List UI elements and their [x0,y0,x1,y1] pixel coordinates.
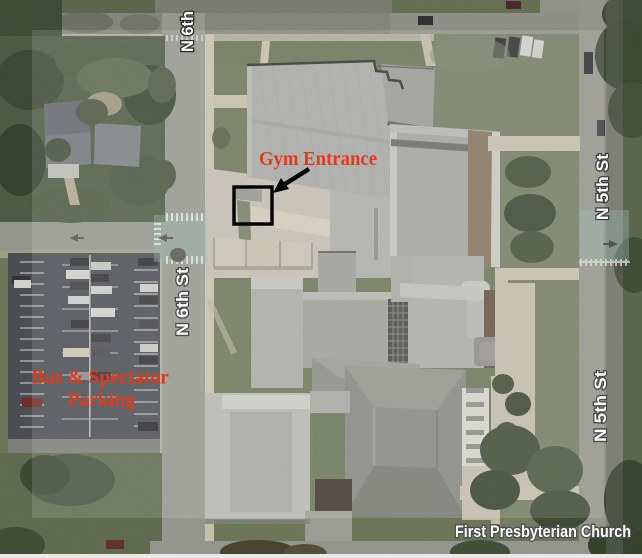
svg-text:N 6th St: N 6th St [173,268,192,336]
svg-text:First Presbyterian Church: First Presbyterian Church [455,522,631,541]
svg-text:Gym Entrance: Gym Entrance [259,148,377,170]
svg-text:N 5th St: N 5th St [591,371,610,442]
svg-text:N 6th: N 6th [178,11,197,52]
svg-text:N 5th St: N 5th St [593,154,612,220]
svg-text:Bus & Spectator: Bus & Spectator [31,368,169,389]
svg-text:Parking: Parking [67,390,134,411]
